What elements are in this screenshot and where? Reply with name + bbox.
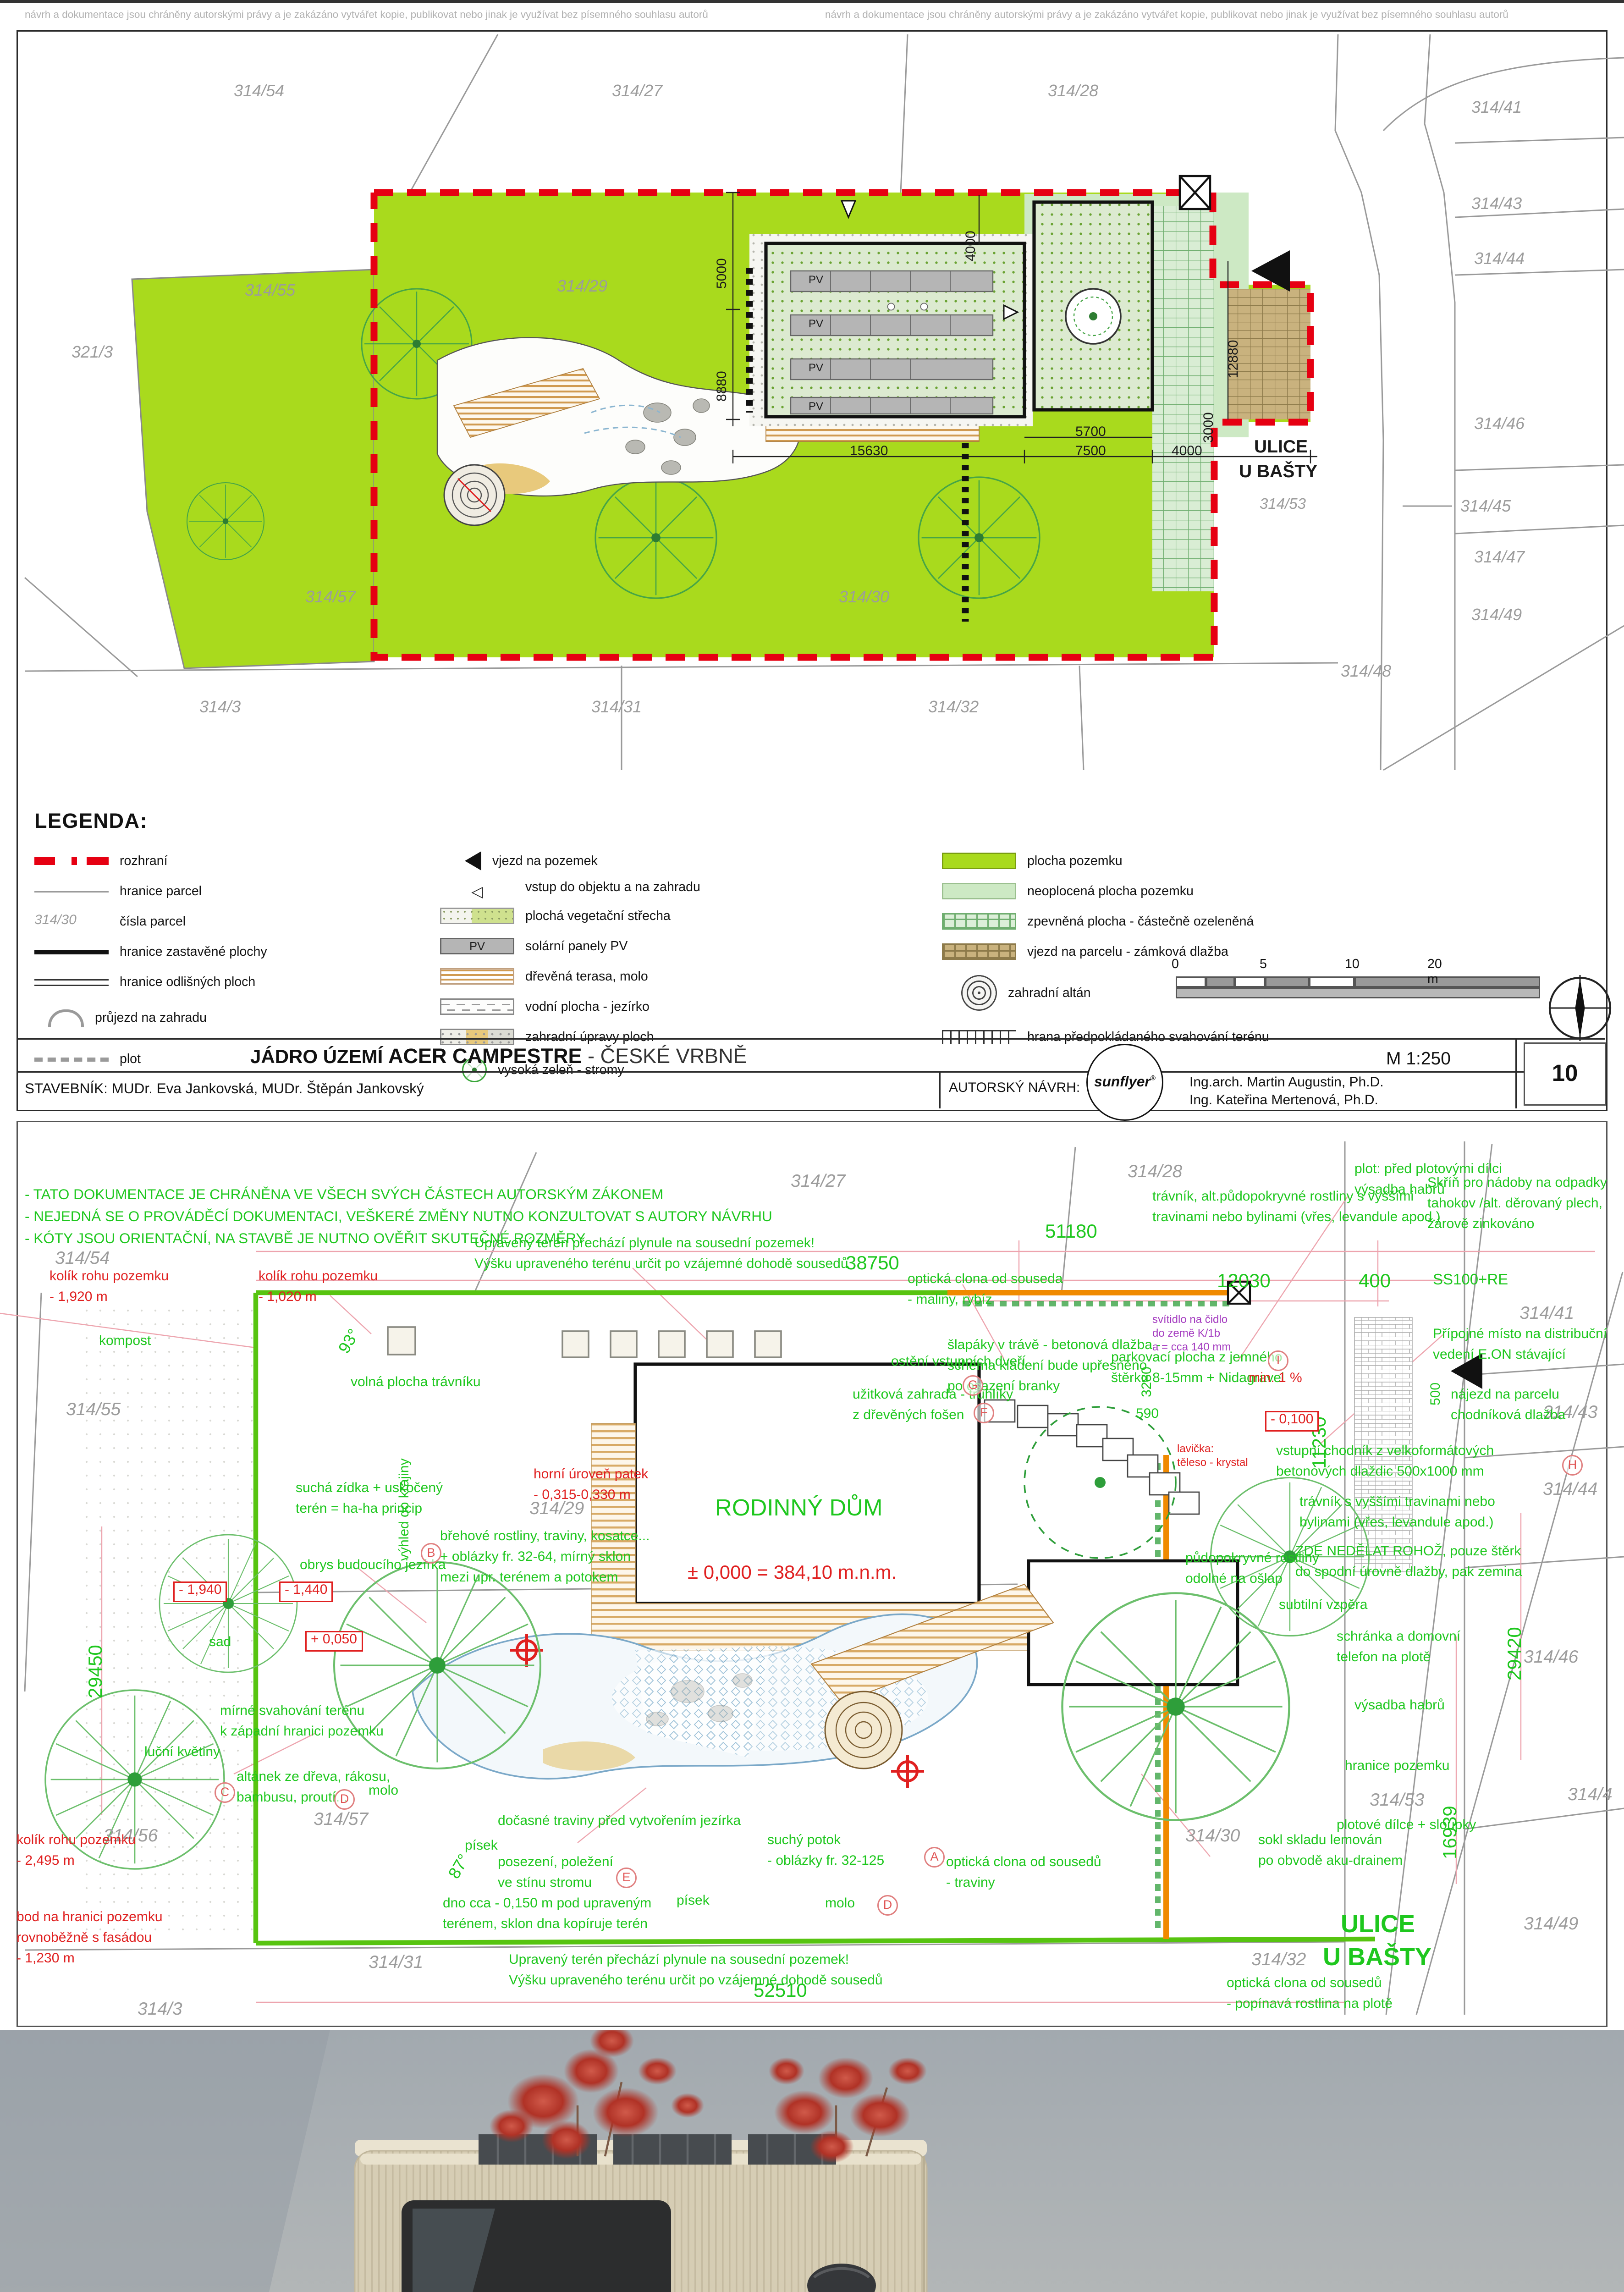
plan-label: Upravený terén přechází plynule na souse… [474,1238,815,1252]
plan-label: H [1562,1455,1583,1476]
plan-label: 5700 [1075,426,1106,441]
plan-label: 314/45 [1460,498,1511,515]
plan-label: ve stínu stromu [498,1877,592,1892]
plan-label: horní úroveň patek [534,1469,648,1483]
plan-label: 8880 [716,371,731,402]
plan-label: 314/57 [305,589,356,606]
plan-label: 314/49 [1471,606,1522,624]
plan-label: 314/32 [1251,1950,1306,1969]
plan-label: G [963,1375,983,1396]
plan-label: ULICE [1341,1912,1415,1938]
plan-label: 314/27 [791,1172,845,1190]
plan-label: 12030 [1217,1271,1271,1291]
plan-label: 29450 [85,1645,105,1698]
plan-label: optická clona od sousedů [1227,1978,1382,1992]
plan-label: do země K/1b [1152,1328,1220,1340]
plan-label: těleso - krystal [1177,1458,1248,1469]
plan-label: 314/54 [55,1249,110,1267]
plan-label: bylinami (vřes, levandule apod.) [1299,1517,1494,1532]
plan-label: 500 [1430,1383,1445,1405]
plan-label: 314/27 [612,83,662,100]
plan-label: půdopokryvné rostliny [1185,1553,1319,1567]
plan-label: U BAŠTY [1323,1945,1431,1971]
plan-label: trávník s vyššími travinami nebo [1299,1496,1495,1511]
plan-label: 314/30 [1185,1826,1240,1845]
plan-label: písek [677,1895,710,1910]
plan-label: - popínavá rostlina na plotě [1227,1998,1393,2013]
plan-label: travinami nebo bylinami (vřes, levandule… [1152,1212,1441,1226]
plan-label: plotové dílce + sloupky [1337,1819,1476,1834]
plan-label: 314/32 [928,699,979,716]
plan-label: PV [809,363,823,375]
plan-label: 15630 [850,446,888,460]
plan-label: kompost [99,1335,151,1350]
plan-label: 314/44 [1474,250,1525,268]
plan-label: 314/31 [591,699,642,716]
plan-label: vedení E.ON stávající [1433,1349,1566,1364]
plan-label: - oblázky fr. 32-125 [767,1855,884,1870]
plan-label: min. 1 % [1249,1372,1302,1387]
plan-label: 314/57 [314,1810,368,1829]
plan-label: - 0,315-0,330 m [534,1489,631,1504]
plan-label: kolík rohu pozemku [50,1271,169,1285]
plan-label: SS100+RE [1433,1273,1508,1289]
plan-label: 314/53 [1370,1791,1424,1809]
plan-label: D [877,1895,898,1916]
plan-label: chodníková dlažba [1451,1410,1565,1424]
plan-label: k západní hranici pozemku [220,1726,384,1741]
plan-label: ostění vstupních dveří [891,1356,1026,1371]
plan-label: - 1,940 [173,1581,227,1602]
plan-label: 321/3 [72,344,113,361]
plan-label: výhled do krajiny [399,1459,413,1561]
plan-label: molo [369,1785,398,1800]
plan-label: + 0,050 [305,1631,363,1651]
plan-label: U BAŠTY [1239,462,1317,481]
plan-label: + oblázky fr. 32-64, mírný sklon [440,1551,631,1566]
plan-label: - 0,100 [1265,1411,1319,1431]
plan-label: 314/30 [839,589,889,606]
plan-label: - 2,495 m [17,1855,75,1870]
plan-label: C [215,1782,235,1803]
plan-label: subtilní vzpěra [1279,1599,1367,1614]
plan-label: 4000 [1172,446,1202,460]
architectural-sheet: návrh a dokumentace jsou chráněny autors… [0,0,1624,2292]
plan-label: D [334,1789,355,1810]
plan-label: 314/48 [1341,663,1391,680]
plan-label: 314/55 [66,1400,121,1419]
plan-label: 314/54 [234,83,284,100]
plan-label: břehové rostliny, traviny, kosatce... [440,1531,650,1545]
plan-label: optická clona od sousedů [946,1857,1101,1871]
plan-label: volná plocha trávníku [351,1377,481,1391]
plan-label: 87° [446,1851,473,1882]
plan-label: 7500 [1075,446,1106,460]
plan-label: sokl skladu lemován [1258,1835,1382,1849]
plan-label: 314/43 [1471,195,1522,213]
plan-label: kolík rohu pozemku [259,1271,378,1285]
plan-label: tahokov /alt. děrovaný plech, [1427,1198,1602,1212]
plan-label: 314/4 [1568,1785,1613,1804]
plan-label: suchý potok [767,1835,841,1849]
plan-label: z dřevěných fošen [853,1410,964,1424]
plan-label: E [616,1868,637,1888]
plan-label: posezení, poležení [498,1857,613,1871]
plan-label: PV [809,275,823,286]
plan-label: mírné svahování terénu [220,1705,364,1720]
plan-label: optická clona od souseda [908,1273,1063,1288]
plan-label: 38750 [846,1253,899,1273]
plan-label: 314/31 [369,1953,423,1972]
plan-label: 51180 [1045,1221,1097,1241]
plan-label: - 1,920 m [50,1291,108,1306]
plan-label: A [924,1847,945,1868]
plan-label: 29420 [1504,1627,1525,1680]
plan-label: RODINNÝ DŮM [715,1496,883,1521]
plan-label: - NEJEDNÁ SE O PROVÁDĚCÍ DOKUMENTACI, VE… [25,1210,772,1225]
plan-label: - maliny, rybíz [908,1294,992,1309]
plan-label: 314/41 [1471,99,1522,116]
plan-label: dočasné traviny před vytvořením jezírka [498,1815,741,1830]
plan-label: písek [465,1840,498,1855]
plan-label: dno cca - 0,150 m pod upraveným [443,1898,651,1912]
plan-label: PV [809,402,823,413]
plan-label: PV [809,319,823,331]
plan-label: nájezd na parcelu [1451,1389,1559,1404]
plan-label: - 1,230 m [17,1953,75,1967]
plan-label: 590 [1136,1408,1159,1423]
plan-label: altánek ze dřeva, rákosu, [237,1771,390,1786]
plan-label: 314/55 [245,282,295,299]
plan-label: 314/41 [1519,1304,1574,1322]
plan-label: I [1268,1350,1288,1371]
plan-label: užitková zahrada - truhlíky [853,1389,1013,1404]
plan-label: - TATO DOKUMENTACE JE CHRÁNĚNA VE VŠECH … [25,1188,663,1203]
annotation-layer: 314/54314/27314/28314/41314/43314/44321/… [0,0,1624,2292]
plan-label: obrys budoucího jezírka [300,1559,446,1574]
plan-label: B [421,1543,441,1564]
plan-label: - traviny [946,1877,995,1892]
plan-label: 314/28 [1128,1162,1182,1181]
plan-label: - 1,020 m [259,1291,317,1306]
plan-label: bambusu, proutí... [237,1792,347,1807]
plan-label: a = cca 140 mm [1152,1342,1231,1354]
plan-label: schránka a domovní [1337,1631,1460,1646]
plan-label: sad [209,1636,231,1651]
plan-label: 400 [1359,1271,1391,1291]
plan-label: 314/3 [138,2000,182,2018]
plan-label: 314/3 [199,699,241,716]
plan-label: 314/29 [557,278,607,295]
plan-label: Výšku upraveného terénu určit po vzájemn… [474,1258,848,1273]
plan-label: vstupní chodník z velkoformátových [1276,1445,1494,1460]
plan-label: Upravený terén přechází plynule na souse… [509,1954,849,1969]
plan-label: lavička: [1177,1444,1214,1455]
plan-label: ± 0,000 = 384,10 m.n.m. [688,1562,897,1582]
plan-label: bod na hranici pozemku [17,1912,163,1926]
plan-label: Skříň pro nádoby na odpadky [1427,1177,1607,1192]
plan-label: 12880 [1228,340,1243,378]
plan-label: 314/49 [1524,1914,1578,1933]
plan-label: do spodní úrovně dlažby, pak zemina [1295,1566,1522,1581]
plan-label: ZDE NEDĚLAT ROHOŽ, pouze štěrk [1295,1546,1521,1560]
plan-label: mezi upr. terénem a potokem [440,1572,618,1587]
plan-label: 5000 [716,258,731,289]
plan-label: 314/46 [1524,1647,1578,1666]
plan-label: 314/28 [1048,83,1098,100]
plan-label: 314/44 [1543,1480,1597,1499]
plan-label: 3000 [1203,412,1218,443]
plan-label: molo [825,1898,855,1912]
plan-label: 314/46 [1474,415,1525,433]
plan-label: suchá zídka + uskočený [296,1482,443,1497]
plan-label: hranice pozemku [1345,1760,1449,1775]
plan-label: 4000 [965,231,980,261]
plan-label: odolné na ošlap [1185,1573,1283,1588]
plan-label: po obvodě aku-drainem [1258,1855,1403,1870]
plan-label: luční květiny [144,1747,220,1761]
plan-label: Výšku upraveného terénu určit po vzájemn… [509,1975,883,1989]
plan-label: 93° [336,1326,363,1356]
plan-label: svítidlo na čidlo [1152,1315,1228,1326]
plan-label: 314/47 [1474,549,1525,566]
plan-label: kolík rohu pozemku [17,1835,136,1849]
plan-label: Přípojné místo na distribuční [1433,1328,1607,1343]
plan-label: parkovací plocha z jemného [1111,1352,1283,1366]
plan-label: ULICE [1254,437,1308,456]
plan-label: betonových dlaždic 500x1000 mm [1276,1466,1484,1481]
plan-label: výsadba habrů [1354,1700,1445,1714]
plan-label: žárově zinkováno [1427,1218,1534,1233]
plan-label: - 1,440 [279,1581,333,1602]
plan-label: telefon na plotě [1337,1652,1431,1666]
plan-label: rovnoběžně s fasádou [17,1932,152,1947]
plan-label: terénem, sklon dna kopíruje terén [443,1918,648,1933]
plan-label: 314/53 [1260,498,1306,514]
plan-label: F [974,1403,994,1423]
